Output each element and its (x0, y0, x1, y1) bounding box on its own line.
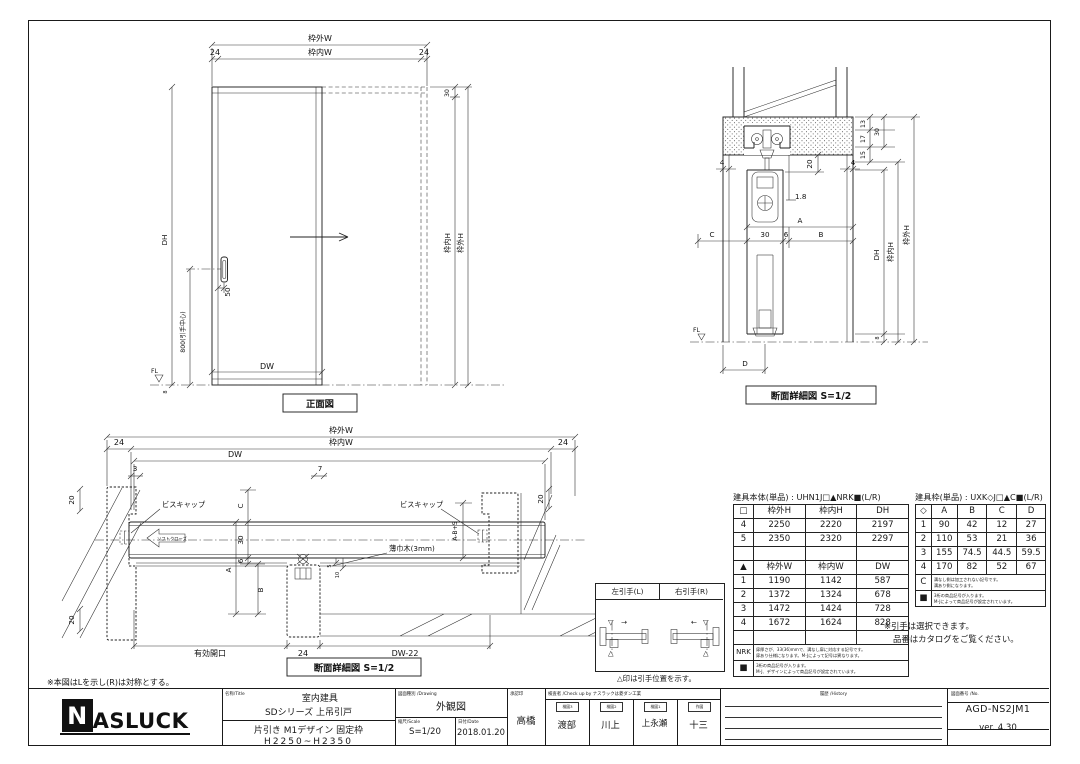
wall-hatch-right (521, 493, 560, 614)
wall-studs (733, 67, 847, 117)
floor-level-marker: FL (693, 327, 705, 340)
dim-label: B (256, 587, 265, 592)
dim-label: 枠内W (308, 47, 332, 57)
svg-text:△: △ (608, 649, 614, 658)
svg-text:FL: FL (151, 368, 159, 375)
checker-name: 川上 (589, 717, 633, 731)
dim-label: 30 (236, 535, 245, 545)
dim-label: 1.8 (795, 192, 807, 201)
door-section (747, 170, 783, 334)
svg-text:←: ← (691, 618, 697, 627)
dim-label: 3 (133, 464, 138, 473)
number-label: 図面番号 /No. (947, 689, 1049, 697)
dim-label: 30 (874, 128, 881, 136)
dim-label: DW (228, 450, 242, 459)
frame-hidden-lines (322, 87, 427, 385)
label: ビスキャップ (162, 500, 206, 509)
dim-label: DH (872, 250, 881, 261)
frame-spec-table: 建具枠(単品) : UXK◇J□▲C■(L/R) ◇A BC D 190 421… (915, 491, 1048, 607)
right-jamb (482, 493, 518, 573)
dim-label: 7 (318, 464, 323, 473)
dim-label: 8 (163, 390, 169, 393)
dim-label: 4 (720, 158, 725, 167)
jamb-lines (723, 155, 853, 342)
approver-name: 高橋 (507, 713, 545, 727)
checker-role: 作図 (688, 702, 711, 712)
dim-label: 枠外W (308, 33, 332, 43)
product-category: 室内建具 (245, 691, 395, 704)
table-row: 2110 5321 36 (916, 533, 1046, 547)
approval-cell: 承認印 高橋 (507, 689, 545, 745)
horizontal-section-caption: 断面詳細図 S=1/2 (287, 658, 421, 676)
company-logo: NASLUCK (28, 689, 222, 745)
table-row: 52350 23202297 (734, 533, 909, 547)
handle-position-note: △印は引手位置を示す。 (617, 673, 696, 684)
footnote: 溝あり側になります。 (934, 583, 1043, 588)
scale-value: S=1/20 (395, 727, 455, 737)
slide-direction-arrow (290, 233, 348, 241)
table-row: ◇A BC D (916, 505, 1046, 519)
dim-label: 6 (236, 558, 245, 563)
body-table-caption: 建具本体(単品) : UHN1J□▲NRK■(L/R) (733, 491, 911, 503)
title-cell: 名称/Title 室内建具 SDシリーズ 上吊引戸 片引き M1デザイン 固定枠… (222, 689, 395, 745)
dim-label: 17 (860, 135, 867, 143)
right-handle-diagram: ← ▽ △ (660, 600, 723, 670)
dim-label: 24 (419, 48, 429, 57)
table-row: ■ 3桁の商品記号が入ります。 M-J、デザインによって商品記号が設定されていま… (734, 661, 909, 677)
body-spec-table: 建具本体(単品) : UHN1J□▲NRK■(L/R) □枠外H 枠内HDH 4… (733, 491, 911, 677)
door-handle (221, 257, 228, 282)
check-label: 検査者 /Check up by ナスラックは菱ダン工業 (545, 689, 720, 697)
label: 薄巾木(3mm) (389, 544, 435, 553)
table-row: 4170 8252 67 (916, 561, 1046, 575)
dim-label: 24 (558, 438, 568, 447)
dim-label: 10 (335, 572, 341, 578)
dim-label: A-B+5 (452, 521, 459, 541)
wall-band (320, 614, 638, 636)
table-row: NRK 扉厚さが、33(36)mmで、溝なし扉に対応する記号です。 扉あり仕様に… (734, 645, 909, 661)
dim-label: 20 (805, 159, 814, 169)
spec-line: 片引き M1デザイン 固定枠 (222, 723, 395, 736)
dim-label: B (819, 230, 824, 239)
dim-label: 20 (67, 615, 76, 625)
checker-name: 渡部 (545, 717, 589, 731)
empty-row (734, 547, 909, 561)
checker-role: 検図2 (600, 702, 623, 712)
date-value: 2018.01.20 (455, 727, 507, 737)
dim-label: 24 (210, 48, 220, 57)
check-cell: 検査者 /Check up by ナスラックは菱ダン工業 検図3 検図2 検図1… (545, 689, 720, 745)
svg-text:ソフトクローズ: ソフトクローズ (157, 536, 188, 543)
dim-label: 30 (760, 230, 770, 239)
drawing-number: AGD-NS2JM1 (947, 704, 1049, 715)
empty-row (734, 631, 909, 645)
checker-role: 検図1 (644, 702, 667, 712)
table-row: ■ 3桁の商品記号が入ります。 M-Jによって商品記号が設定されています。 (916, 591, 1046, 607)
door-plan (95, 522, 585, 558)
dim-label: 800(引手中心) (179, 311, 187, 352)
floor-level-marker: FL (151, 368, 163, 382)
front-view-caption: 正面図 (283, 394, 357, 412)
dim-label: D (742, 359, 748, 368)
table-row: 42250 22202197 (734, 519, 909, 533)
frame-table-caption: 建具枠(単品) : UXK◇J□▲C■(L/R) (915, 491, 1048, 503)
dim-label: 8 (875, 336, 881, 339)
drawing-type: 外観図 (395, 698, 507, 713)
footnote: M-Jによって商品記号が設定されています。 (934, 599, 1043, 604)
dim-label: 13 (860, 120, 867, 128)
floor-guide (753, 310, 777, 336)
table-row: 3155 74.544.5 59.5 (916, 547, 1046, 561)
svg-text:断面詳細図 S=1/2: 断面詳細図 S=1/2 (771, 390, 852, 402)
dim-label: DW (260, 362, 274, 371)
mullion (287, 565, 320, 637)
drawing-sheet: 枠外W 24 枠内W 24 50 (0, 0, 1080, 764)
drawing-number-cell: 図面番号 /No. AGD-NS2JM1 ver. 4.30 (947, 689, 1049, 745)
checker-role: 検図3 (556, 702, 579, 712)
scale-label: 縮尺/Scale (398, 719, 420, 725)
dim-label: 枠外W (329, 425, 353, 435)
soft-close-arrow: ソフトクローズ (147, 529, 188, 547)
checker-name: 上永瀬 (633, 717, 677, 729)
table-row: ▲枠外W 枠内WDW (734, 561, 909, 575)
dim-label: 15 (860, 151, 867, 159)
vertical-section-caption: 断面詳細図 S=1/2 (746, 386, 876, 404)
label: ビスキャップ (400, 500, 444, 509)
dim-label: A (224, 567, 233, 572)
dim-label: 24 (114, 438, 124, 447)
dim-label: 5 (327, 564, 333, 567)
title-block: NASLUCK 名称/Title 室内建具 SDシリーズ 上吊引戸 片引き M1… (28, 688, 1049, 745)
dim-label: 20 (67, 495, 76, 505)
svg-text:正面図: 正面図 (306, 399, 334, 410)
footnote: 扉あり仕様になります。M-Jによって記号は異なります。 (756, 653, 906, 658)
dim-label: C (236, 503, 245, 508)
dim-label: 枠内H (886, 242, 895, 262)
title-label: 名称/Title (222, 691, 245, 697)
dim-label: DH (160, 235, 169, 246)
table-row: 31472 1424728 (734, 603, 909, 617)
dim-label: 枠内W (329, 437, 353, 447)
checker-name: 十三 (677, 717, 721, 731)
handle-choice-note: ※引手は選択できます。 品番はカタログをご覧ください。 (884, 620, 1019, 646)
svg-text:FL: FL (693, 327, 701, 334)
footnote: M-J、デザインによって商品記号が設定されています。 (756, 669, 906, 674)
dim-label: 枠内H (443, 233, 452, 253)
svg-text:断面詳細図 S=1/2: 断面詳細図 S=1/2 (314, 662, 395, 674)
table-row: 190 4212 27 (916, 519, 1046, 533)
drawing-type-cell: 図面種別 /Drawing 外観図 縮尺/Scale S=1/20 日付/Dat… (395, 689, 507, 745)
approval-label: 承認印 (507, 689, 545, 697)
table-row: 41672 1624828 (734, 617, 909, 631)
dim-label: DW-22 (392, 649, 419, 658)
svg-text:→: → (621, 618, 627, 627)
right-handle-header: 右引手(R) (660, 584, 723, 600)
height-range: H2250~H2350 (222, 737, 395, 747)
dim-label: 4 (851, 158, 856, 167)
dim-label: 30 (444, 89, 451, 97)
table-row: C 溝なし側は加工されない記号です。 溝あり側になります。 (916, 575, 1046, 591)
horizontal-section-drawing: 枠外W 24 枠内W 24 DW 3 7 ビスキャップ ソフトクローズ (45, 428, 645, 690)
svg-text:▽: ▽ (703, 618, 709, 627)
svg-text:▽: ▽ (608, 618, 614, 627)
left-jamb (107, 487, 136, 640)
dim-label: 20 (536, 494, 545, 504)
dim-label: 有効開口 (194, 648, 226, 658)
date-label: 日付/Date (458, 719, 479, 725)
history-label: 履歴 /History (720, 689, 947, 697)
series-name: SDシリーズ 上吊引戸 (222, 705, 395, 718)
left-handle-header: 左引手(L) (596, 584, 660, 600)
dim-label: 50 (223, 287, 232, 297)
front-view-drawing: 枠外W 24 枠内W 24 50 (40, 25, 512, 425)
table-row: 21372 1324678 (734, 589, 909, 603)
drawing-label: 図面種別 /Drawing (395, 689, 507, 697)
logo-n-icon: N (62, 699, 93, 732)
handle-selection-box: 左引手(L) 右引手(R) ▽ → △ ← ▽ △ (595, 583, 725, 672)
door-leaf (212, 87, 322, 385)
dim-label: 枠外H (902, 225, 911, 245)
vertical-section-drawing: FL 4 4 20 1.8 A C 30 6 B 13 17 (678, 65, 930, 410)
mirror-note: ※本図はLを示し(R)は対称とする。 (47, 677, 174, 687)
dim-label: C (709, 230, 714, 239)
table-row: 11190 1142587 (734, 575, 909, 589)
dim-label: 24 (298, 649, 308, 658)
svg-text:△: △ (703, 649, 709, 658)
dim-label: 枠外H (456, 233, 465, 253)
version: ver. 4.30 (947, 723, 1049, 733)
left-handle-diagram: ▽ → △ (596, 600, 659, 670)
table-row: □枠外H 枠内HDH (734, 505, 909, 519)
history-cell: 履歴 /History (720, 689, 947, 745)
dim-label: A (798, 216, 803, 225)
dim-label: 6 (784, 230, 789, 239)
